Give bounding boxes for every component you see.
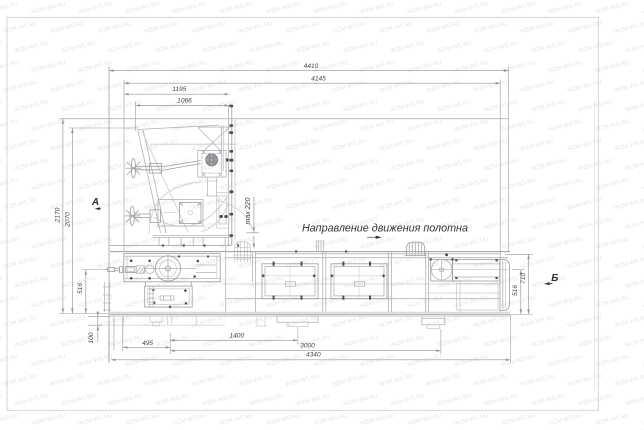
svg-text:WZM-WS.RU: WZM-WS.RU (108, 334, 144, 348)
svg-text:WZM-WS.RU: WZM-WS.RU (548, 354, 584, 368)
svg-text:WZM-WS.RU: WZM-WS.RU (219, 1, 255, 15)
svg-text:WZM-WS.RU: WZM-WS.RU (501, 413, 537, 427)
svg-text:WZM-WS.RU: WZM-WS.RU (595, 354, 631, 368)
svg-text:WZM-WS.RU: WZM-WS.RU (407, 1, 443, 15)
svg-text:WZM-WS.RU: WZM-WS.RU (125, 236, 161, 250)
svg-text:WZM-WS.RU: WZM-WS.RU (313, 236, 349, 250)
svg-text:WZM-WS.RU: WZM-WS.RU (3, 374, 39, 388)
svg-text:WZM-WS.RU: WZM-WS.RU (31, 354, 67, 368)
svg-text:WZM-WS.RU: WZM-WS.RU (595, 236, 631, 250)
svg-text:WZM-WS.RU: WZM-WS.RU (531, 40, 567, 54)
svg-text:4145: 4145 (311, 75, 326, 82)
svg-text:WZM-WS.RU: WZM-WS.RU (3, 138, 39, 152)
svg-text:WZM-WS.RU: WZM-WS.RU (578, 334, 614, 348)
svg-text:WZM-WS.RU: WZM-WS.RU (578, 217, 614, 231)
svg-text:WZM-WS.RU: WZM-WS.RU (0, 178, 19, 192)
svg-text:WZM-WS.RU: WZM-WS.RU (296, 393, 332, 407)
svg-text:WZM-WS.RU: WZM-WS.RU (437, 99, 473, 113)
svg-text:WZM-WS.RU: WZM-WS.RU (343, 393, 379, 407)
svg-text:WZM-WS.RU: WZM-WS.RU (238, 21, 274, 35)
svg-text:516: 516 (512, 285, 519, 296)
svg-text:WZM-WS.RU: WZM-WS.RU (454, 354, 490, 368)
svg-text:WZM-WS.RU: WZM-WS.RU (567, 80, 603, 94)
svg-text:WZM-WS.RU: WZM-WS.RU (454, 119, 490, 133)
svg-text:WZM-WS.RU: WZM-WS.RU (437, 393, 473, 407)
svg-text:WZM-WS.RU: WZM-WS.RU (219, 295, 255, 309)
svg-text:WZM-WS.RU: WZM-WS.RU (531, 99, 567, 113)
svg-text:4340: 4340 (306, 352, 321, 359)
svg-text:WZM-WS.RU: WZM-WS.RU (379, 80, 415, 94)
svg-text:3000: 3000 (300, 343, 315, 350)
svg-text:WZM-WS.RU: WZM-WS.RU (3, 21, 39, 35)
svg-text:WZM-WS.RU: WZM-WS.RU (266, 413, 302, 427)
svg-text:WZM-WS.RU: WZM-WS.RU (501, 1, 537, 15)
svg-text:WZM-WS.RU: WZM-WS.RU (313, 119, 349, 133)
svg-text:WZM-WS.RU: WZM-WS.RU (285, 138, 321, 152)
svg-text:WZM-WS.RU: WZM-WS.RU (144, 374, 180, 388)
svg-text:WZM-WS.RU: WZM-WS.RU (567, 374, 603, 388)
svg-text:WZM-WS.RU: WZM-WS.RU (97, 138, 133, 152)
svg-text:WZM-WS.RU: WZM-WS.RU (0, 40, 2, 54)
svg-text:WZM-WS.RU: WZM-WS.RU (379, 197, 415, 211)
svg-text:WZM-WS.RU: WZM-WS.RU (0, 393, 2, 407)
svg-text:WZM-WS.RU: WZM-WS.RU (0, 276, 2, 290)
svg-text:WZM-WS.RU: WZM-WS.RU (144, 138, 180, 152)
svg-text:WZM-WS.RU: WZM-WS.RU (595, 413, 631, 427)
svg-text:WZM-WS.RU: WZM-WS.RU (125, 178, 161, 192)
svg-text:WZM-WS.RU: WZM-WS.RU (285, 197, 321, 211)
svg-text:WZM-WS.RU: WZM-WS.RU (501, 60, 537, 74)
svg-text:WZM-WS.RU: WZM-WS.RU (155, 334, 191, 348)
svg-text:WZM-WS.RU: WZM-WS.RU (296, 99, 332, 113)
svg-text:WZM-WS.RU: WZM-WS.RU (313, 178, 349, 192)
svg-text:WZM-WS.RU: WZM-WS.RU (296, 40, 332, 54)
svg-text:WZM-WS.RU: WZM-WS.RU (332, 21, 368, 35)
svg-text:WZM-WS.RU: WZM-WS.RU (125, 413, 161, 427)
svg-text:WZM-WS.RU: WZM-WS.RU (285, 21, 321, 35)
svg-text:WZM-WS.RU: WZM-WS.RU (14, 334, 50, 348)
svg-text:WZM-WS.RU: WZM-WS.RU (50, 315, 86, 329)
svg-text:WZM-WS.RU: WZM-WS.RU (144, 21, 180, 35)
svg-text:WZM-WS.RU: WZM-WS.RU (219, 119, 255, 133)
svg-text:2170: 2170 (54, 207, 61, 223)
svg-text:WZM-WS.RU: WZM-WS.RU (473, 374, 509, 388)
svg-text:WZM-WS.RU: WZM-WS.RU (78, 119, 114, 133)
svg-text:WZM-WS.RU: WZM-WS.RU (390, 40, 426, 54)
svg-text:WZM-WS.RU: WZM-WS.RU (484, 217, 520, 231)
svg-text:WZM-WS.RU: WZM-WS.RU (14, 99, 50, 113)
svg-text:WZM-WS.RU: WZM-WS.RU (249, 99, 285, 113)
svg-text:WZM-WS.RU: WZM-WS.RU (0, 119, 19, 133)
svg-text:WZM-WS.RU: WZM-WS.RU (625, 393, 644, 407)
svg-text:WZM-WS.RU: WZM-WS.RU (125, 354, 161, 368)
svg-text:WZM-WS.RU: WZM-WS.RU (625, 276, 644, 290)
svg-text:WZM-WS.RU: WZM-WS.RU (578, 393, 614, 407)
svg-text:WZM-WS.RU: WZM-WS.RU (191, 256, 227, 270)
svg-text:WZM-WS.RU: WZM-WS.RU (520, 80, 556, 94)
svg-text:WZM-WS.RU: WZM-WS.RU (61, 40, 97, 54)
svg-text:WZM-WS.RU: WZM-WS.RU (473, 315, 509, 329)
svg-text:WZM-WS.RU: WZM-WS.RU (14, 217, 50, 231)
svg-text:WZM-WS.RU: WZM-WS.RU (108, 40, 144, 54)
svg-text:WZM-WS.RU: WZM-WS.RU (548, 60, 584, 74)
svg-text:WZM-WS.RU: WZM-WS.RU (484, 334, 520, 348)
svg-text:WZM-WS.RU: WZM-WS.RU (595, 295, 631, 309)
svg-text:WZM-WS.RU: WZM-WS.RU (202, 393, 238, 407)
svg-text:1400: 1400 (229, 332, 244, 339)
svg-text:WZM-WS.RU: WZM-WS.RU (531, 158, 567, 172)
svg-text:WZM-WS.RU: WZM-WS.RU (249, 40, 285, 54)
svg-text:WZM-WS.RU: WZM-WS.RU (50, 256, 86, 270)
svg-text:WZM-WS.RU: WZM-WS.RU (0, 413, 19, 427)
svg-text:WZM-WS.RU: WZM-WS.RU (484, 393, 520, 407)
svg-text:Б: Б (551, 273, 558, 284)
svg-text:WZM-WS.RU: WZM-WS.RU (61, 99, 97, 113)
svg-text:WZM-WS.RU: WZM-WS.RU (31, 413, 67, 427)
svg-text:WZM-WS.RU: WZM-WS.RU (407, 119, 443, 133)
svg-text:100: 100 (88, 332, 95, 343)
svg-text:WZM-WS.RU: WZM-WS.RU (172, 413, 208, 427)
svg-text:WZM-WS.RU: WZM-WS.RU (379, 315, 415, 329)
svg-text:WZM-WS.RU: WZM-WS.RU (360, 1, 396, 15)
svg-text:WZM-WS.RU: WZM-WS.RU (202, 40, 238, 54)
svg-text:WZM-WS.RU: WZM-WS.RU (390, 393, 426, 407)
svg-text:WZM-WS.RU: WZM-WS.RU (332, 315, 368, 329)
svg-text:WZM-WS.RU: WZM-WS.RU (625, 334, 644, 348)
svg-text:WZM-WS.RU: WZM-WS.RU (155, 393, 191, 407)
svg-text:WZM-WS.RU: WZM-WS.RU (219, 354, 255, 368)
svg-text:WZM-WS.RU: WZM-WS.RU (14, 276, 50, 290)
svg-text:WZM-WS.RU: WZM-WS.RU (296, 158, 332, 172)
svg-text:WZM-WS.RU: WZM-WS.RU (0, 99, 2, 113)
svg-text:WZM-WS.RU: WZM-WS.RU (332, 80, 368, 94)
svg-text:WZM-WS.RU: WZM-WS.RU (501, 236, 537, 250)
svg-text:WZM-WS.RU: WZM-WS.RU (31, 119, 67, 133)
svg-text:max 220: max 220 (245, 197, 252, 224)
svg-text:516: 516 (77, 283, 84, 294)
svg-text:WZM-WS.RU: WZM-WS.RU (578, 158, 614, 172)
svg-text:WZM-WS.RU: WZM-WS.RU (61, 158, 97, 172)
svg-text:WZM-WS.RU: WZM-WS.RU (390, 334, 426, 348)
svg-text:WZM-WS.RU: WZM-WS.RU (266, 60, 302, 74)
svg-text:WZM-WS.RU: WZM-WS.RU (172, 354, 208, 368)
svg-text:WZM-WS.RU: WZM-WS.RU (426, 197, 462, 211)
svg-text:WZM-WS.RU: WZM-WS.RU (426, 315, 462, 329)
svg-text:WZM-WS.RU: WZM-WS.RU (191, 80, 227, 94)
svg-text:WZM-WS.RU: WZM-WS.RU (266, 119, 302, 133)
svg-text:WZM-WS.RU: WZM-WS.RU (78, 1, 114, 15)
svg-text:WZM-WS.RU: WZM-WS.RU (520, 256, 556, 270)
svg-text:WZM-WS.RU: WZM-WS.RU (454, 1, 490, 15)
svg-text:WZM-WS.RU: WZM-WS.RU (191, 374, 227, 388)
svg-text:WZM-WS.RU: WZM-WS.RU (454, 295, 490, 309)
svg-text:WZM-WS.RU: WZM-WS.RU (78, 236, 114, 250)
svg-text:WZM-WS.RU: WZM-WS.RU (78, 295, 114, 309)
svg-text:WZM-WS.RU: WZM-WS.RU (108, 393, 144, 407)
svg-text:WZM-WS.RU: WZM-WS.RU (332, 197, 368, 211)
svg-text:WZM-WS.RU: WZM-WS.RU (625, 99, 644, 113)
svg-text:WZM-WS.RU: WZM-WS.RU (614, 197, 644, 211)
svg-text:WZM-WS.RU: WZM-WS.RU (548, 413, 584, 427)
svg-text:WZM-WS.RU: WZM-WS.RU (97, 374, 133, 388)
svg-text:WZM-WS.RU: WZM-WS.RU (0, 334, 2, 348)
svg-text:WZM-WS.RU: WZM-WS.RU (0, 217, 2, 231)
svg-text:WZM-WS.RU: WZM-WS.RU (172, 60, 208, 74)
svg-text:WZM-WS.RU: WZM-WS.RU (360, 413, 396, 427)
svg-text:1195: 1195 (172, 86, 187, 93)
svg-text:WZM-WS.RU: WZM-WS.RU (501, 354, 537, 368)
svg-text:WZM-WS.RU: WZM-WS.RU (332, 138, 368, 152)
svg-text:WZM-WS.RU: WZM-WS.RU (97, 80, 133, 94)
svg-text:WZM-WS.RU: WZM-WS.RU (426, 80, 462, 94)
svg-text:WZM-WS.RU: WZM-WS.RU (50, 80, 86, 94)
svg-text:WZM-WS.RU: WZM-WS.RU (567, 256, 603, 270)
svg-text:WZM-WS.RU: WZM-WS.RU (61, 393, 97, 407)
svg-text:WZM-WS.RU: WZM-WS.RU (407, 60, 443, 74)
svg-text:WZM-WS.RU: WZM-WS.RU (108, 276, 144, 290)
svg-text:WZM-WS.RU: WZM-WS.RU (238, 197, 274, 211)
svg-text:WZM-WS.RU: WZM-WS.RU (238, 315, 274, 329)
svg-text:WZM-WS.RU: WZM-WS.RU (78, 354, 114, 368)
svg-text:WZM-WS.RU: WZM-WS.RU (108, 99, 144, 113)
svg-text:WZM-WS.RU: WZM-WS.RU (50, 374, 86, 388)
svg-text:WZM-WS.RU: WZM-WS.RU (520, 374, 556, 388)
svg-text:WZM-WS.RU: WZM-WS.RU (266, 295, 302, 309)
svg-text:WZM-WS.RU: WZM-WS.RU (78, 413, 114, 427)
svg-text:WZM-WS.RU: WZM-WS.RU (332, 374, 368, 388)
svg-text:WZM-WS.RU: WZM-WS.RU (172, 236, 208, 250)
svg-text:WZM-WS.RU: WZM-WS.RU (531, 393, 567, 407)
svg-text:WZM-WS.RU: WZM-WS.RU (31, 295, 67, 309)
svg-text:WZM-WS.RU: WZM-WS.RU (97, 21, 133, 35)
svg-text:WZM-WS.RU: WZM-WS.RU (390, 158, 426, 172)
svg-text:WZM-WS.RU: WZM-WS.RU (595, 178, 631, 192)
svg-text:WZM-WS.RU: WZM-WS.RU (50, 138, 86, 152)
svg-text:WZM-WS.RU: WZM-WS.RU (567, 315, 603, 329)
svg-text:WZM-WS.RU: WZM-WS.RU (595, 60, 631, 74)
svg-text:WZM-WS.RU: WZM-WS.RU (238, 80, 274, 94)
svg-text:WZM-WS.RU: WZM-WS.RU (454, 178, 490, 192)
svg-text:WZM-WS.RU: WZM-WS.RU (520, 315, 556, 329)
svg-text:WZM-WS.RU: WZM-WS.RU (360, 295, 396, 309)
svg-text:495: 495 (142, 340, 153, 347)
svg-text:WZM-WS.RU: WZM-WS.RU (285, 374, 321, 388)
svg-text:WZM-WS.RU: WZM-WS.RU (473, 80, 509, 94)
svg-text:WZM-WS.RU: WZM-WS.RU (97, 315, 133, 329)
svg-text:WZM-WS.RU: WZM-WS.RU (520, 197, 556, 211)
svg-text:WZM-WS.RU: WZM-WS.RU (437, 40, 473, 54)
svg-text:WZM-WS.RU: WZM-WS.RU (614, 374, 644, 388)
svg-text:WZM-WS.RU: WZM-WS.RU (379, 21, 415, 35)
svg-text:WZM-WS.RU: WZM-WS.RU (219, 413, 255, 427)
svg-text:1066: 1066 (177, 97, 192, 104)
svg-text:WZM-WS.RU: WZM-WS.RU (454, 236, 490, 250)
svg-text:WZM-WS.RU: WZM-WS.RU (548, 1, 584, 15)
svg-text:WZM-WS.RU: WZM-WS.RU (484, 99, 520, 113)
svg-text:WZM-WS.RU: WZM-WS.RU (437, 158, 473, 172)
svg-text:WZM-WS.RU: WZM-WS.RU (501, 178, 537, 192)
svg-text:WZM-WS.RU: WZM-WS.RU (567, 197, 603, 211)
svg-text:WZM-WS.RU: WZM-WS.RU (332, 256, 368, 270)
svg-text:Направление движения полотна: Направление движения полотна (302, 222, 468, 234)
svg-text:WZM-WS.RU: WZM-WS.RU (614, 138, 644, 152)
svg-text:WZM-WS.RU: WZM-WS.RU (125, 1, 161, 15)
svg-text:WZM-WS.RU: WZM-WS.RU (578, 99, 614, 113)
svg-text:WZM-WS.RU: WZM-WS.RU (343, 99, 379, 113)
svg-text:WZM-WS.RU: WZM-WS.RU (266, 178, 302, 192)
svg-text:WZM-WS.RU: WZM-WS.RU (625, 158, 644, 172)
svg-text:WZM-WS.RU: WZM-WS.RU (407, 413, 443, 427)
svg-text:WZM-WS.RU: WZM-WS.RU (31, 178, 67, 192)
svg-text:WZM-WS.RU: WZM-WS.RU (426, 138, 462, 152)
svg-text:WZM-WS.RU: WZM-WS.RU (191, 21, 227, 35)
svg-text:WZM-WS.RU: WZM-WS.RU (614, 21, 644, 35)
svg-text:WZM-WS.RU: WZM-WS.RU (390, 276, 426, 290)
svg-text:WZM-WS.RU: WZM-WS.RU (578, 40, 614, 54)
svg-text:WZM-WS.RU: WZM-WS.RU (426, 374, 462, 388)
svg-text:4410: 4410 (304, 63, 319, 70)
svg-text:WZM-WS.RU: WZM-WS.RU (625, 217, 644, 231)
svg-text:WZM-WS.RU: WZM-WS.RU (595, 1, 631, 15)
svg-text:WZM-WS.RU: WZM-WS.RU (548, 178, 584, 192)
svg-text:WZM-WS.RU: WZM-WS.RU (548, 119, 584, 133)
svg-text:WZM-WS.RU: WZM-WS.RU (31, 1, 67, 15)
svg-text:WZM-WS.RU: WZM-WS.RU (219, 178, 255, 192)
svg-text:WZM-WS.RU: WZM-WS.RU (520, 21, 556, 35)
svg-text:WZM-WS.RU: WZM-WS.RU (219, 60, 255, 74)
svg-text:WZM-WS.RU: WZM-WS.RU (172, 1, 208, 15)
svg-text:WZM-WS.RU: WZM-WS.RU (614, 80, 644, 94)
svg-text:WZM-WS.RU: WZM-WS.RU (202, 276, 238, 290)
svg-text:WZM-WS.RU: WZM-WS.RU (3, 315, 39, 329)
svg-text:WZM-WS.RU: WZM-WS.RU (249, 334, 285, 348)
svg-text:WZM-WS.RU: WZM-WS.RU (14, 393, 50, 407)
svg-text:WZM-WS.RU: WZM-WS.RU (379, 374, 415, 388)
svg-text:WZM-WS.RU: WZM-WS.RU (548, 295, 584, 309)
svg-text:WZM-WS.RU: WZM-WS.RU (0, 60, 19, 74)
svg-text:WZM-WS.RU: WZM-WS.RU (266, 354, 302, 368)
svg-text:WZM-WS.RU: WZM-WS.RU (614, 315, 644, 329)
svg-text:WZM-WS.RU: WZM-WS.RU (313, 1, 349, 15)
svg-text:WZM-WS.RU: WZM-WS.RU (473, 197, 509, 211)
svg-text:WZM-WS.RU: WZM-WS.RU (501, 295, 537, 309)
svg-text:WZM-WS.RU: WZM-WS.RU (390, 99, 426, 113)
svg-text:WZM-WS.RU: WZM-WS.RU (531, 217, 567, 231)
svg-text:WZM-WS.RU: WZM-WS.RU (437, 276, 473, 290)
svg-text:WZM-WS.RU: WZM-WS.RU (125, 60, 161, 74)
svg-text:WZM-WS.RU: WZM-WS.RU (155, 40, 191, 54)
svg-text:WZM-WS.RU: WZM-WS.RU (0, 295, 19, 309)
svg-text:WZM-WS.RU: WZM-WS.RU (360, 354, 396, 368)
svg-text:WZM-WS.RU: WZM-WS.RU (567, 138, 603, 152)
svg-text:WZM-WS.RU: WZM-WS.RU (50, 21, 86, 35)
svg-text:WZM-WS.RU: WZM-WS.RU (78, 60, 114, 74)
svg-text:WZM-WS.RU: WZM-WS.RU (473, 138, 509, 152)
svg-text:WZM-WS.RU: WZM-WS.RU (343, 40, 379, 54)
svg-text:WZM-WS.RU: WZM-WS.RU (548, 236, 584, 250)
svg-text:WZM-WS.RU: WZM-WS.RU (238, 138, 274, 152)
svg-text:WZM-WS.RU: WZM-WS.RU (343, 158, 379, 172)
svg-text:WZM-WS.RU: WZM-WS.RU (454, 413, 490, 427)
svg-text:WZM-WS.RU: WZM-WS.RU (437, 334, 473, 348)
svg-text:WZM-WS.RU: WZM-WS.RU (473, 21, 509, 35)
svg-text:WZM-WS.RU: WZM-WS.RU (520, 138, 556, 152)
svg-text:WZM-WS.RU: WZM-WS.RU (0, 158, 2, 172)
svg-text:WZM-WS.RU: WZM-WS.RU (266, 236, 302, 250)
svg-text:710: 710 (520, 272, 527, 283)
svg-text:WZM-WS.RU: WZM-WS.RU (343, 334, 379, 348)
svg-text:WZM-WS.RU: WZM-WS.RU (484, 40, 520, 54)
svg-text:WZM-WS.RU: WZM-WS.RU (0, 354, 19, 368)
svg-text:WZM-WS.RU: WZM-WS.RU (426, 21, 462, 35)
svg-text:WZM-WS.RU: WZM-WS.RU (238, 374, 274, 388)
svg-text:А: А (91, 197, 99, 208)
svg-text:WZM-WS.RU: WZM-WS.RU (360, 60, 396, 74)
svg-text:2070: 2070 (64, 212, 71, 228)
svg-text:WZM-WS.RU: WZM-WS.RU (0, 236, 19, 250)
svg-text:WZM-WS.RU: WZM-WS.RU (31, 60, 67, 74)
svg-text:WZM-WS.RU: WZM-WS.RU (0, 1, 19, 15)
svg-text:WZM-WS.RU: WZM-WS.RU (625, 40, 644, 54)
svg-text:WZM-WS.RU: WZM-WS.RU (484, 158, 520, 172)
svg-text:WZM-WS.RU: WZM-WS.RU (3, 80, 39, 94)
svg-text:WZM-WS.RU: WZM-WS.RU (14, 158, 50, 172)
svg-text:WZM-WS.RU: WZM-WS.RU (501, 119, 537, 133)
svg-text:WZM-WS.RU: WZM-WS.RU (531, 334, 567, 348)
svg-text:WZM-WS.RU: WZM-WS.RU (97, 197, 133, 211)
svg-text:WZM-WS.RU: WZM-WS.RU (343, 276, 379, 290)
svg-text:WZM-WS.RU: WZM-WS.RU (360, 236, 396, 250)
svg-text:WZM-WS.RU: WZM-WS.RU (249, 276, 285, 290)
svg-text:WZM-WS.RU: WZM-WS.RU (407, 354, 443, 368)
svg-text:WZM-WS.RU: WZM-WS.RU (249, 158, 285, 172)
svg-text:WZM-WS.RU: WZM-WS.RU (172, 178, 208, 192)
svg-text:WZM-WS.RU: WZM-WS.RU (379, 138, 415, 152)
svg-text:WZM-WS.RU: WZM-WS.RU (407, 178, 443, 192)
svg-text:WZM-WS.RU: WZM-WS.RU (14, 40, 50, 54)
svg-text:WZM-WS.RU: WZM-WS.RU (3, 197, 39, 211)
svg-text:WZM-WS.RU: WZM-WS.RU (360, 119, 396, 133)
svg-text:WZM-WS.RU: WZM-WS.RU (567, 21, 603, 35)
svg-text:WZM-WS.RU: WZM-WS.RU (360, 178, 396, 192)
svg-text:WZM-WS.RU: WZM-WS.RU (31, 236, 67, 250)
svg-text:WZM-WS.RU: WZM-WS.RU (454, 60, 490, 74)
svg-text:WZM-WS.RU: WZM-WS.RU (108, 217, 144, 231)
svg-text:WZM-WS.RU: WZM-WS.RU (3, 256, 39, 270)
svg-text:WZM-WS.RU: WZM-WS.RU (78, 178, 114, 192)
svg-text:WZM-WS.RU: WZM-WS.RU (614, 256, 644, 270)
svg-text:WZM-WS.RU: WZM-WS.RU (249, 393, 285, 407)
svg-text:WZM-WS.RU: WZM-WS.RU (125, 119, 161, 133)
svg-text:WZM-WS.RU: WZM-WS.RU (266, 1, 302, 15)
svg-text:WZM-WS.RU: WZM-WS.RU (407, 295, 443, 309)
svg-text:WZM-WS.RU: WZM-WS.RU (595, 119, 631, 133)
svg-text:WZM-WS.RU: WZM-WS.RU (578, 276, 614, 290)
svg-text:WZM-WS.RU: WZM-WS.RU (313, 413, 349, 427)
